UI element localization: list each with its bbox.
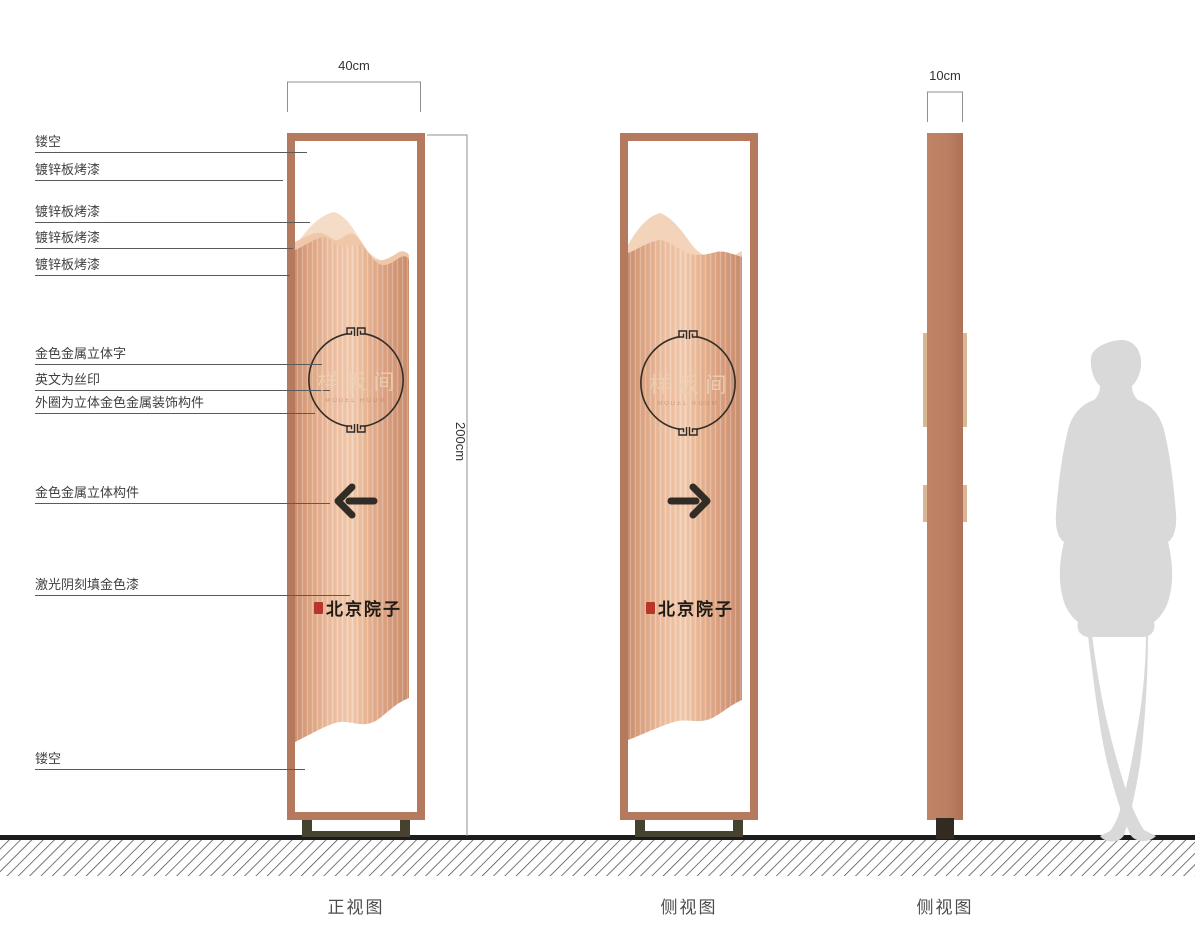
annotation-label: 金色金属立体字	[35, 346, 126, 362]
leader-line	[35, 364, 322, 365]
spec-drawing	[0, 0, 1195, 927]
annotation-label: 镀锌板烤漆	[35, 162, 100, 178]
base-foot	[936, 818, 954, 839]
leader-line	[35, 413, 315, 414]
side-width-dimension-bracket	[928, 92, 963, 122]
leader-line	[35, 275, 290, 276]
seal-icon	[646, 602, 655, 614]
side-width-dimension: 10cm	[917, 68, 973, 83]
panel-slab	[927, 133, 963, 820]
annotation-label: 镀锌板烤漆	[35, 230, 100, 246]
view-label-front: 正视图	[287, 893, 425, 918]
width-dimension-bracket	[288, 82, 421, 112]
annotation-label: 镀锌板烤漆	[35, 257, 100, 273]
height-dimension: 200cm	[453, 422, 468, 461]
room-name-english-side: MODEL ROOM	[631, 401, 745, 407]
annotation-label: 英文为丝印	[35, 372, 100, 388]
seal-icon	[314, 602, 323, 614]
room-name-english-front: MODEL ROOM	[299, 398, 413, 404]
ground-hatch	[0, 840, 1195, 876]
view-label-side-profile: 侧视图	[876, 893, 1014, 918]
annotation-label: 镂空	[35, 751, 61, 767]
annotation-label: 镂空	[35, 134, 61, 150]
ground-line	[0, 835, 1195, 840]
leader-line	[35, 769, 305, 770]
room-name-side: 样板间	[641, 369, 735, 399]
brand-signature-side: 北京院子	[638, 595, 742, 620]
annotation-label: 激光阴刻填金色漆	[35, 577, 139, 593]
front-width-dimension: 40cm	[287, 58, 421, 73]
leader-line	[35, 180, 283, 181]
view-label-side: 侧视图	[620, 893, 758, 918]
base-stand	[635, 820, 743, 837]
panel-body-grain	[628, 240, 742, 740]
room-name-front: 样板间	[309, 366, 403, 396]
brand-name: 北京院子	[326, 595, 402, 620]
base-stand	[302, 820, 410, 837]
side-view-panel	[620, 133, 758, 837]
brand-name: 北京院子	[658, 595, 734, 620]
leader-line	[35, 595, 350, 596]
leader-line	[35, 152, 307, 153]
brand-signature-front: 北京院子	[306, 595, 410, 620]
human-silhouette	[1056, 340, 1176, 842]
annotation-label: 外圈为立体金色金属装饰构件	[35, 395, 204, 411]
annotation-label: 镀锌板烤漆	[35, 204, 100, 220]
leader-line	[35, 248, 293, 249]
height-dimension-line	[427, 135, 467, 836]
front-view-panel	[287, 133, 425, 837]
leader-line	[35, 222, 310, 223]
side-profile-panel	[923, 133, 967, 839]
leader-line	[35, 503, 330, 504]
annotation-label: 金色金属立体构件	[35, 485, 139, 501]
leader-line	[35, 390, 330, 391]
signage-spec-sheet: 镂空 镀锌板烤漆 镀锌板烤漆 镀锌板烤漆 镀锌板烤漆 金色金属立体字 英文为丝印…	[0, 0, 1195, 927]
